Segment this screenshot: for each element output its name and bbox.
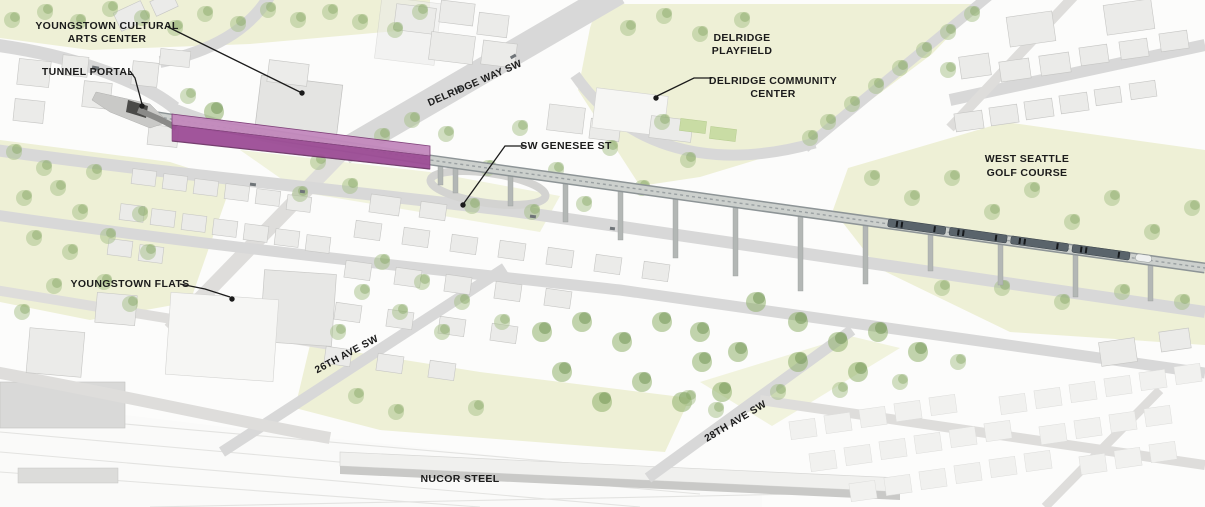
label-delridge-playfield: DELRIDGE PLAYFIELD bbox=[712, 32, 773, 57]
label-golf-line1: WEST SEATTLE bbox=[985, 153, 1070, 165]
label-ycac-line1: YOUNGSTOWN CULTURAL bbox=[35, 20, 179, 32]
label-tunnel-portal: TUNNEL PORTAL bbox=[42, 66, 134, 78]
rendering-stage: YOUNGSTOWN CULTURAL ARTS CENTER TUNNEL P… bbox=[0, 0, 1205, 507]
label-nucor-steel: NUCOR STEEL bbox=[420, 473, 499, 485]
label-ycac-line2: ARTS CENTER bbox=[68, 33, 147, 45]
industrial-strip-building bbox=[18, 468, 118, 483]
label-playfield-line2: PLAYFIELD bbox=[712, 45, 773, 57]
label-youngstown-flats: YOUNGSTOWN FLATS bbox=[71, 278, 190, 290]
label-community-center-line2: CENTER bbox=[750, 88, 795, 100]
aerial-map-canvas: YOUNGSTOWN CULTURAL ARTS CENTER TUNNEL P… bbox=[0, 0, 1205, 507]
label-playfield-line1: DELRIDGE bbox=[713, 32, 770, 44]
label-community-center-line1: DELRIDGE COMMUNITY bbox=[709, 75, 837, 87]
label-sw-genesee-st: SW GENESEE ST bbox=[520, 140, 612, 152]
label-golf-line2: GOLF COURSE bbox=[987, 167, 1068, 179]
